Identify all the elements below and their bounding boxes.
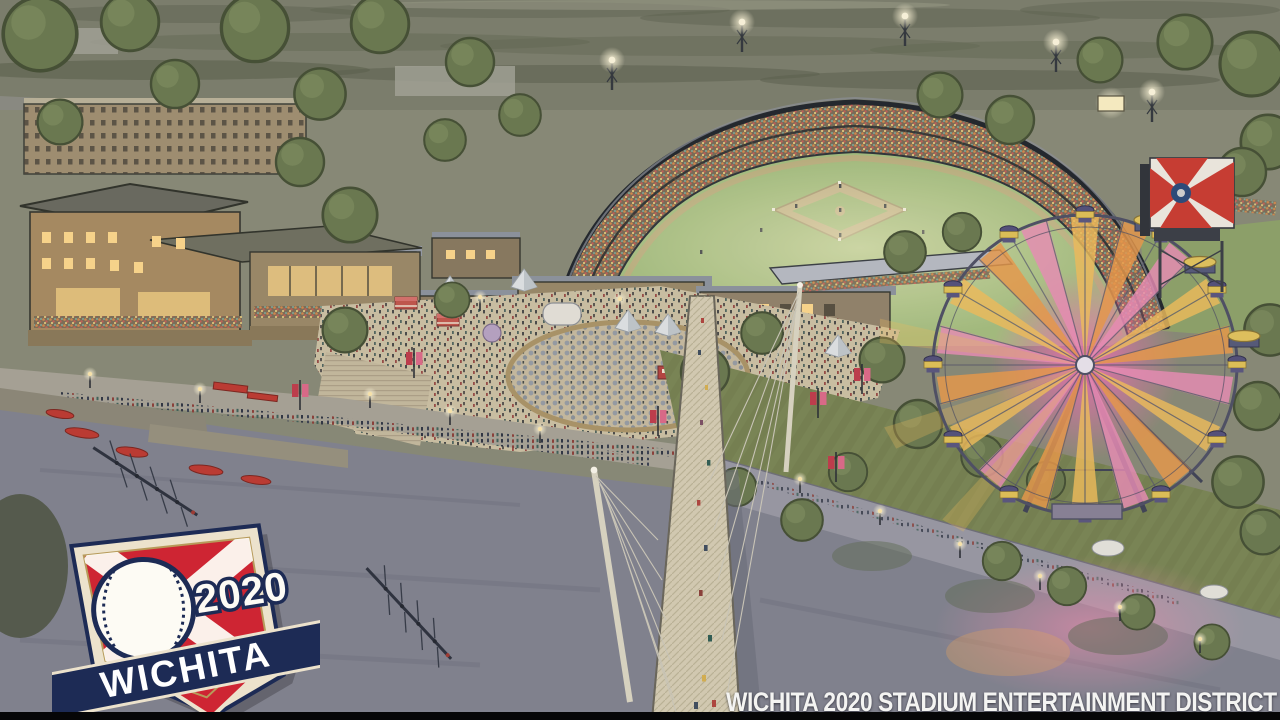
screenshot-root: 2020 WICHITA WICHITA 2020 STADIUM ENTERT… xyxy=(0,0,1280,720)
baseball-icon xyxy=(92,558,195,661)
wichita-2020-logo: 2020 WICHITA xyxy=(52,516,320,720)
letterbox-bar xyxy=(0,712,1280,720)
